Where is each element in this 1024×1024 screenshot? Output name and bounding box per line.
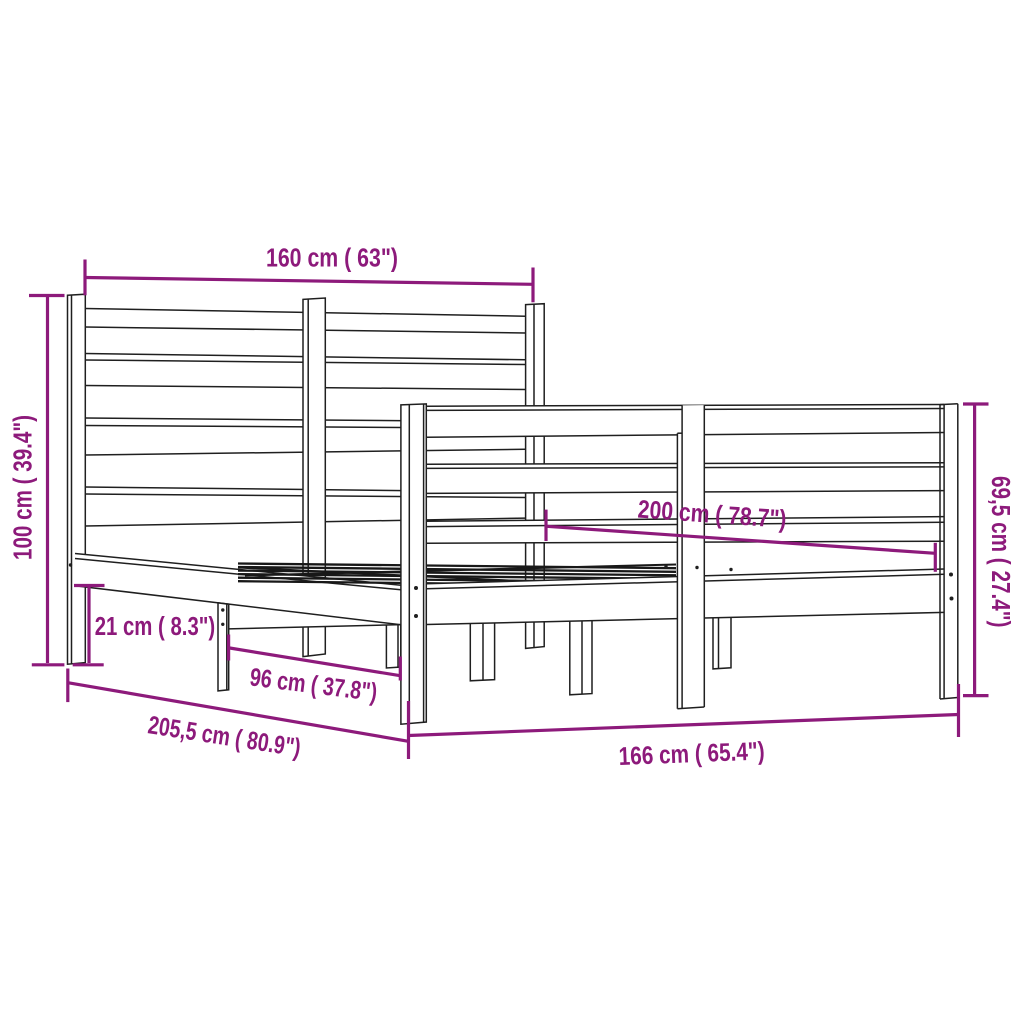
svg-text:100 cm ( 39.4"): 100 cm ( 39.4")	[9, 415, 37, 560]
svg-text:69,5 cm ( 27.4"): 69,5 cm ( 27.4")	[986, 476, 1014, 628]
svg-text:21 cm ( 8.3"): 21 cm ( 8.3")	[95, 613, 216, 641]
svg-text:166 cm ( 65.4"): 166 cm ( 65.4")	[618, 737, 765, 771]
svg-text:160 cm ( 63"): 160 cm ( 63")	[266, 245, 398, 273]
